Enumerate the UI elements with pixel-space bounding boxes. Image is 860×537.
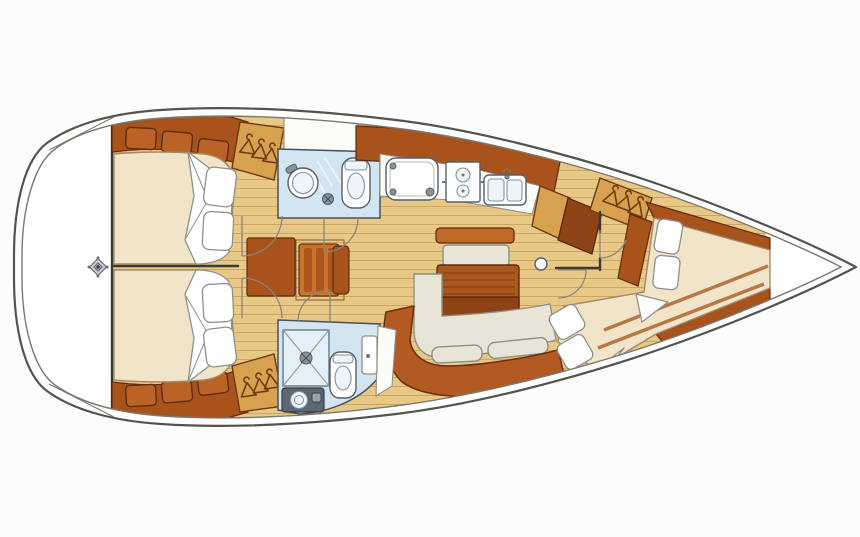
shower-drain-icon: [323, 194, 334, 205]
sideboard: [436, 228, 514, 243]
shower-tray: [283, 330, 329, 386]
interior: [88, 100, 855, 440]
yacht-floor-plan: [0, 0, 860, 537]
saloon-bench: [443, 245, 509, 266]
double-sink-icon: [484, 169, 526, 205]
chart-table: [247, 238, 295, 296]
settee-cushion: [432, 345, 483, 364]
vanity-counter: [282, 388, 324, 412]
sink-basin-icon: [291, 392, 308, 409]
toilet-icon: [330, 352, 356, 398]
stove-icon: [442, 162, 484, 202]
nav-cabinet: [333, 246, 349, 294]
pillow: [652, 255, 680, 290]
toilet-icon: [342, 158, 370, 208]
head-door: [362, 336, 377, 374]
shower-drain-icon: [300, 352, 312, 364]
mast-post-icon: [535, 258, 547, 270]
fridge-icon: [386, 158, 438, 200]
pillow: [653, 218, 683, 255]
